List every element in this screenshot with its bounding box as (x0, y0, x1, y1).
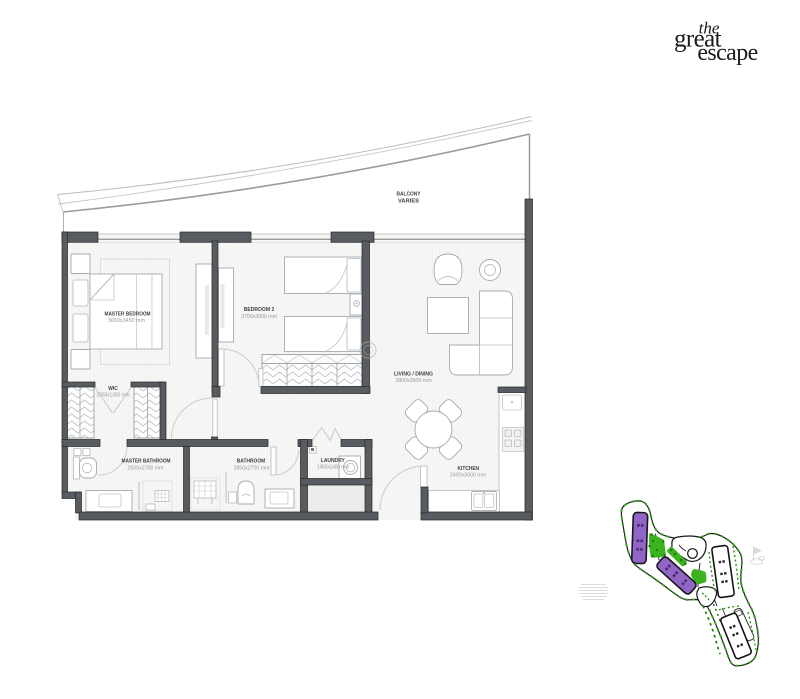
svg-text:BEDROOM 2: BEDROOM 2 (244, 307, 275, 313)
svg-text:VARIES: VARIES (398, 198, 419, 204)
svg-text:3700x3000 mm: 3700x3000 mm (241, 314, 277, 320)
svg-text:2400x3000 mm: 2400x3000 mm (450, 472, 486, 478)
svg-text:3650x3450 mm: 3650x3450 mm (108, 318, 145, 324)
svg-text:1450x1400 mm: 1450x1400 mm (317, 464, 349, 470)
svg-text:2500x2700 mm: 2500x2700 mm (128, 465, 164, 471)
svg-text:3800x3600 mm: 3800x3600 mm (395, 378, 432, 384)
svg-text:KITCHEN: KITCHEN (458, 466, 480, 472)
svg-text:2850x2700 mm: 2850x2700 mm (234, 465, 270, 471)
svg-text:escape: escape (697, 40, 757, 66)
svg-text:BALCONY: BALCONY (397, 192, 421, 198)
svg-text:BATHROOM: BATHROOM (237, 459, 266, 465)
svg-text:LAUNDRY: LAUNDRY (321, 458, 345, 464)
svg-text:MASTER BEDROOM: MASTER BEDROOM (105, 312, 151, 318)
svg-text:MASTER BATHROOM: MASTER BATHROOM (122, 459, 171, 465)
svg-text:LIVING / DINING: LIVING / DINING (394, 372, 433, 378)
svg-text:WIC: WIC (108, 386, 118, 392)
svg-text:2350x1350 mm: 2350x1350 mm (97, 393, 130, 399)
